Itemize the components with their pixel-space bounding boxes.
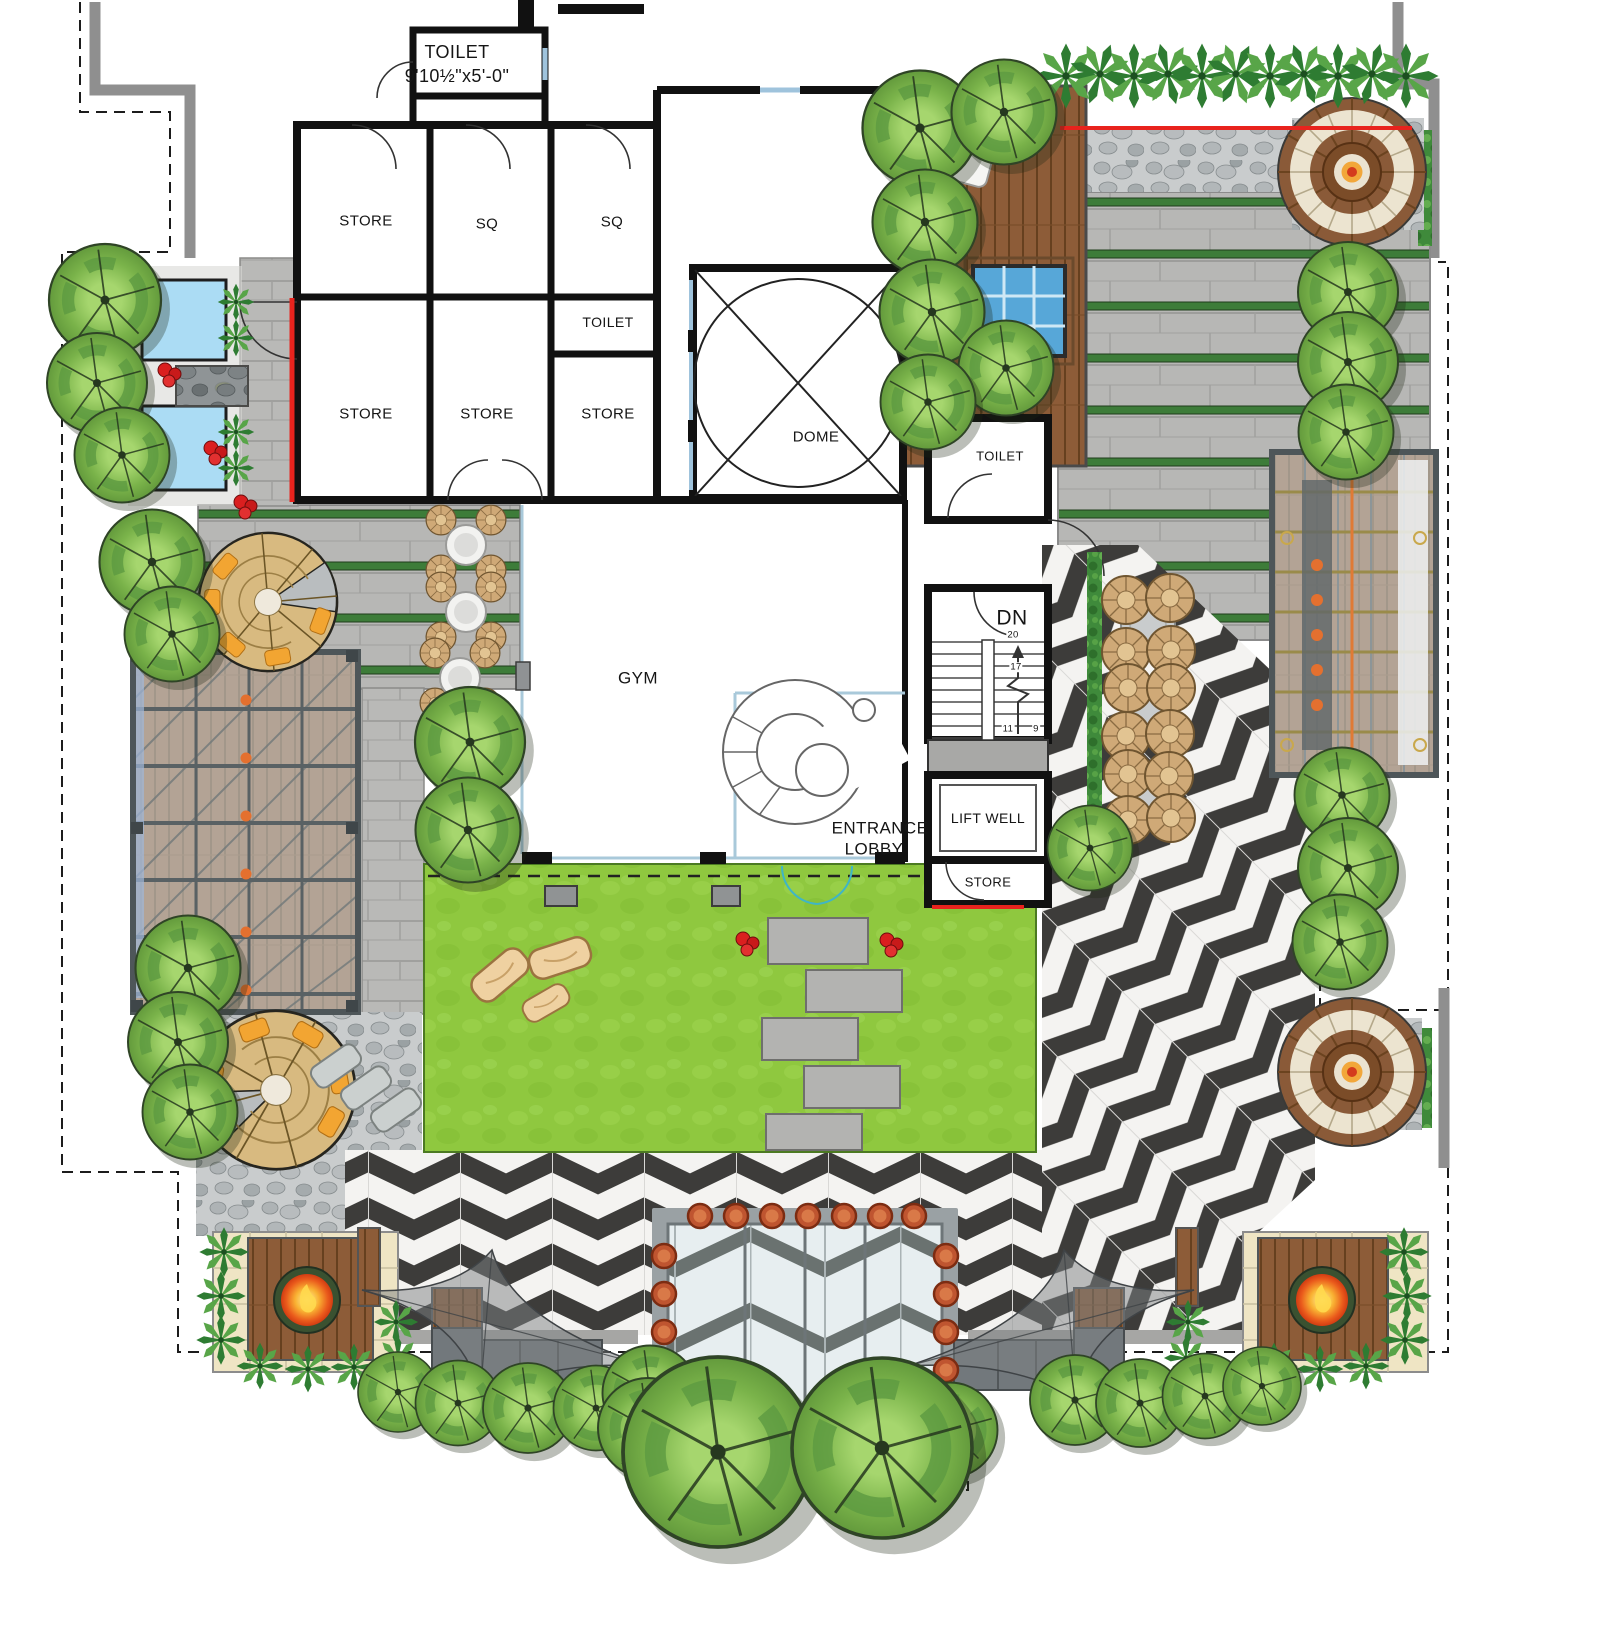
palm-icon	[1343, 1343, 1390, 1390]
pot-icon	[934, 1244, 958, 1268]
site-plan-canvas	[0, 0, 1600, 1643]
pot-icon	[868, 1204, 892, 1228]
pergola-right	[1272, 452, 1436, 775]
landscape-plan: TOILET 9'10½"x5'-0" STORE SQ SQ TOILET S…	[0, 0, 1600, 1643]
wall-pier	[545, 886, 577, 906]
round-fire-lounge-top	[1278, 98, 1426, 246]
palm-icon	[1195, 33, 1278, 116]
pouf-icon	[1146, 574, 1194, 622]
wall-pier	[712, 886, 740, 906]
room-gym	[522, 500, 905, 862]
pouf-icon	[1145, 752, 1193, 800]
palm-icon	[374, 1300, 418, 1344]
palm-icon	[285, 1346, 332, 1393]
pot-icon	[760, 1204, 784, 1228]
palm-icon	[1380, 1315, 1429, 1364]
pouf-icon	[1147, 794, 1195, 842]
pouf-icon	[1102, 576, 1150, 624]
palm-icon	[1166, 1300, 1210, 1344]
pot-icon	[832, 1204, 856, 1228]
palm-icon	[1374, 44, 1439, 109]
palm-icon	[237, 1343, 284, 1390]
pouf-icon	[1146, 710, 1194, 758]
palm-icon	[218, 414, 254, 450]
palm-icon	[218, 320, 254, 356]
pouf-icon	[1104, 664, 1152, 712]
room-toilet-top	[413, 30, 545, 96]
pot-icon	[652, 1282, 676, 1306]
pot-icon	[724, 1204, 748, 1228]
palm-icon	[196, 1315, 245, 1364]
pot-icon	[902, 1204, 926, 1228]
round-fire-lounge-bottom	[1278, 998, 1426, 1146]
pot-icon	[934, 1320, 958, 1344]
pot-icon	[652, 1320, 676, 1344]
palm-icon	[196, 1271, 245, 1320]
palm-icon	[1130, 36, 1206, 112]
pot-icon	[934, 1282, 958, 1306]
palm-icon	[199, 1227, 248, 1276]
pot-icon	[688, 1204, 712, 1228]
palm-icon	[1382, 1271, 1431, 1320]
pouf-icon	[1147, 664, 1195, 712]
pot-icon	[796, 1204, 820, 1228]
pot-icon	[652, 1244, 676, 1268]
palm-icon	[1379, 1227, 1428, 1276]
palm-icon	[218, 284, 254, 320]
pebble-mosaic	[176, 366, 248, 406]
